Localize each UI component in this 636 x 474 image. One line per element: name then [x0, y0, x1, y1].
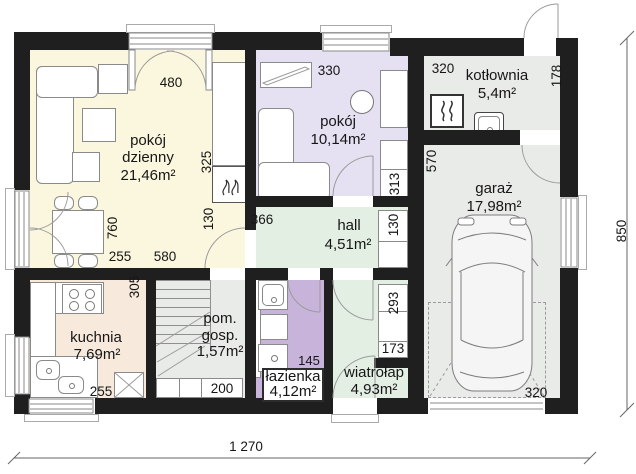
window-sill — [578, 195, 587, 270]
washbasin — [258, 280, 288, 310]
room-area-boiler: 5,4m² — [459, 87, 535, 102]
floor-plan: pokój dzienny 21,46m² pokój 10,14m² kotł… — [0, 0, 636, 474]
room-area-bathroom: 4,12m² — [262, 385, 324, 400]
dim-dining-depth: 760 — [105, 208, 119, 248]
dim-kitchen-width: 255 — [76, 385, 126, 399]
dim-living-hall-door: 130 — [201, 199, 215, 239]
dim-bedroom-cabinet: 313 — [387, 164, 401, 204]
wall-segment — [14, 32, 30, 190]
sofa-ottoman-top — [98, 64, 128, 94]
dim-utility-cabinet: 200 — [200, 382, 244, 396]
wall-segment — [560, 268, 578, 414]
terrace-door-window — [15, 191, 29, 267]
sofa-ottoman-bottom — [72, 152, 100, 182]
room-label-bedroom: pokój — [300, 115, 376, 130]
fireplace-icon — [213, 167, 245, 202]
wall-segment — [212, 32, 322, 50]
dim-hall-width: 366 — [237, 213, 287, 227]
furnace-icon — [432, 96, 462, 126]
tv-cabinet — [212, 62, 246, 166]
dim-boiler-depth: 178 — [549, 56, 563, 96]
room-label-utility: pom. gosp. — [196, 311, 244, 344]
dim-garage-depth: 570 — [424, 141, 438, 181]
dim-living-cabinet: 325 — [199, 142, 213, 182]
bedroom-sofa-seat — [258, 162, 330, 200]
dim-hall-closet: 130 — [386, 205, 400, 245]
dim-balcony-door: 480 — [146, 76, 196, 90]
dining-chair — [54, 196, 74, 210]
wall-segment — [146, 268, 156, 398]
stove — [62, 284, 102, 314]
room-area-bedroom: 10,14m² — [300, 133, 376, 148]
wall-segment — [373, 268, 408, 280]
dining-table — [52, 210, 104, 254]
dim-vestibule-closet-width: 173 — [371, 342, 415, 356]
room-label-kitchen: kuchnia — [58, 331, 134, 346]
window-sill — [5, 334, 15, 397]
room-label-vestibule: wiatrołap — [335, 366, 413, 381]
balcony-door-window — [129, 33, 212, 49]
room-label-living: pokój dzienny — [110, 133, 186, 167]
wall-segment — [14, 32, 130, 50]
door-opening — [245, 230, 256, 268]
window-sill — [24, 414, 99, 422]
room-area-vestibule: 4,93m² — [337, 383, 411, 398]
bedroom-window — [323, 33, 389, 51]
kitchen-window — [15, 337, 29, 394]
wall-segment — [320, 268, 333, 280]
room-area-garage: 17,98m² — [456, 200, 532, 215]
dim-total-width: 1 270 — [218, 440, 274, 455]
dim-kitchen-depth: 305 — [127, 267, 141, 307]
door-threshold — [331, 414, 379, 423]
corner-sofa-top — [36, 66, 98, 98]
dim-boiler-width: 320 — [418, 62, 468, 76]
wall-segment — [256, 268, 288, 280]
kitchen-sink-basin — [36, 360, 60, 380]
dim-bathroom-width: 145 — [284, 355, 334, 368]
window-sill — [5, 188, 15, 270]
dim-vestibule-closet: 293 — [386, 283, 400, 323]
wall-segment — [14, 268, 210, 280]
garage-window — [561, 198, 577, 267]
dim-total-height: 850 — [614, 211, 628, 251]
room-area-hall: 4,51m² — [310, 238, 386, 253]
room-area-utility: 1,57m² — [192, 345, 248, 360]
room-area-living: 21,46m² — [104, 169, 192, 184]
window-sill — [126, 24, 215, 33]
dim-staircase-width: 580 — [140, 250, 190, 264]
dim-garage-gate: 320 — [510, 386, 562, 400]
window-sill — [320, 25, 392, 33]
wall-segment — [245, 268, 256, 402]
kitchen-bottom-window — [29, 399, 93, 413]
room-label-boiler: kotłownia — [458, 69, 536, 84]
room-label-hall: hall — [311, 219, 387, 234]
wall-segment — [545, 398, 578, 414]
door-arc — [524, 4, 558, 38]
dining-chair — [54, 254, 74, 268]
wall-segment — [245, 50, 256, 230]
wall-segment — [377, 398, 428, 414]
desk — [380, 70, 408, 128]
dim-bedroom-shelf: 330 — [304, 64, 354, 78]
dining-chair — [78, 196, 98, 210]
room-label-garage: garaż — [456, 182, 532, 197]
wall-segment — [424, 130, 520, 145]
dim-dining-width: 255 — [95, 250, 145, 264]
parking-space-outline — [428, 302, 546, 398]
desk-chair — [350, 90, 374, 114]
toilet — [260, 314, 288, 340]
fireplace — [212, 166, 246, 203]
room-area-kitchen: 7,69m² — [59, 348, 135, 363]
wall-segment — [324, 280, 333, 402]
wall-segment — [256, 196, 333, 207]
wall-segment — [14, 398, 28, 414]
